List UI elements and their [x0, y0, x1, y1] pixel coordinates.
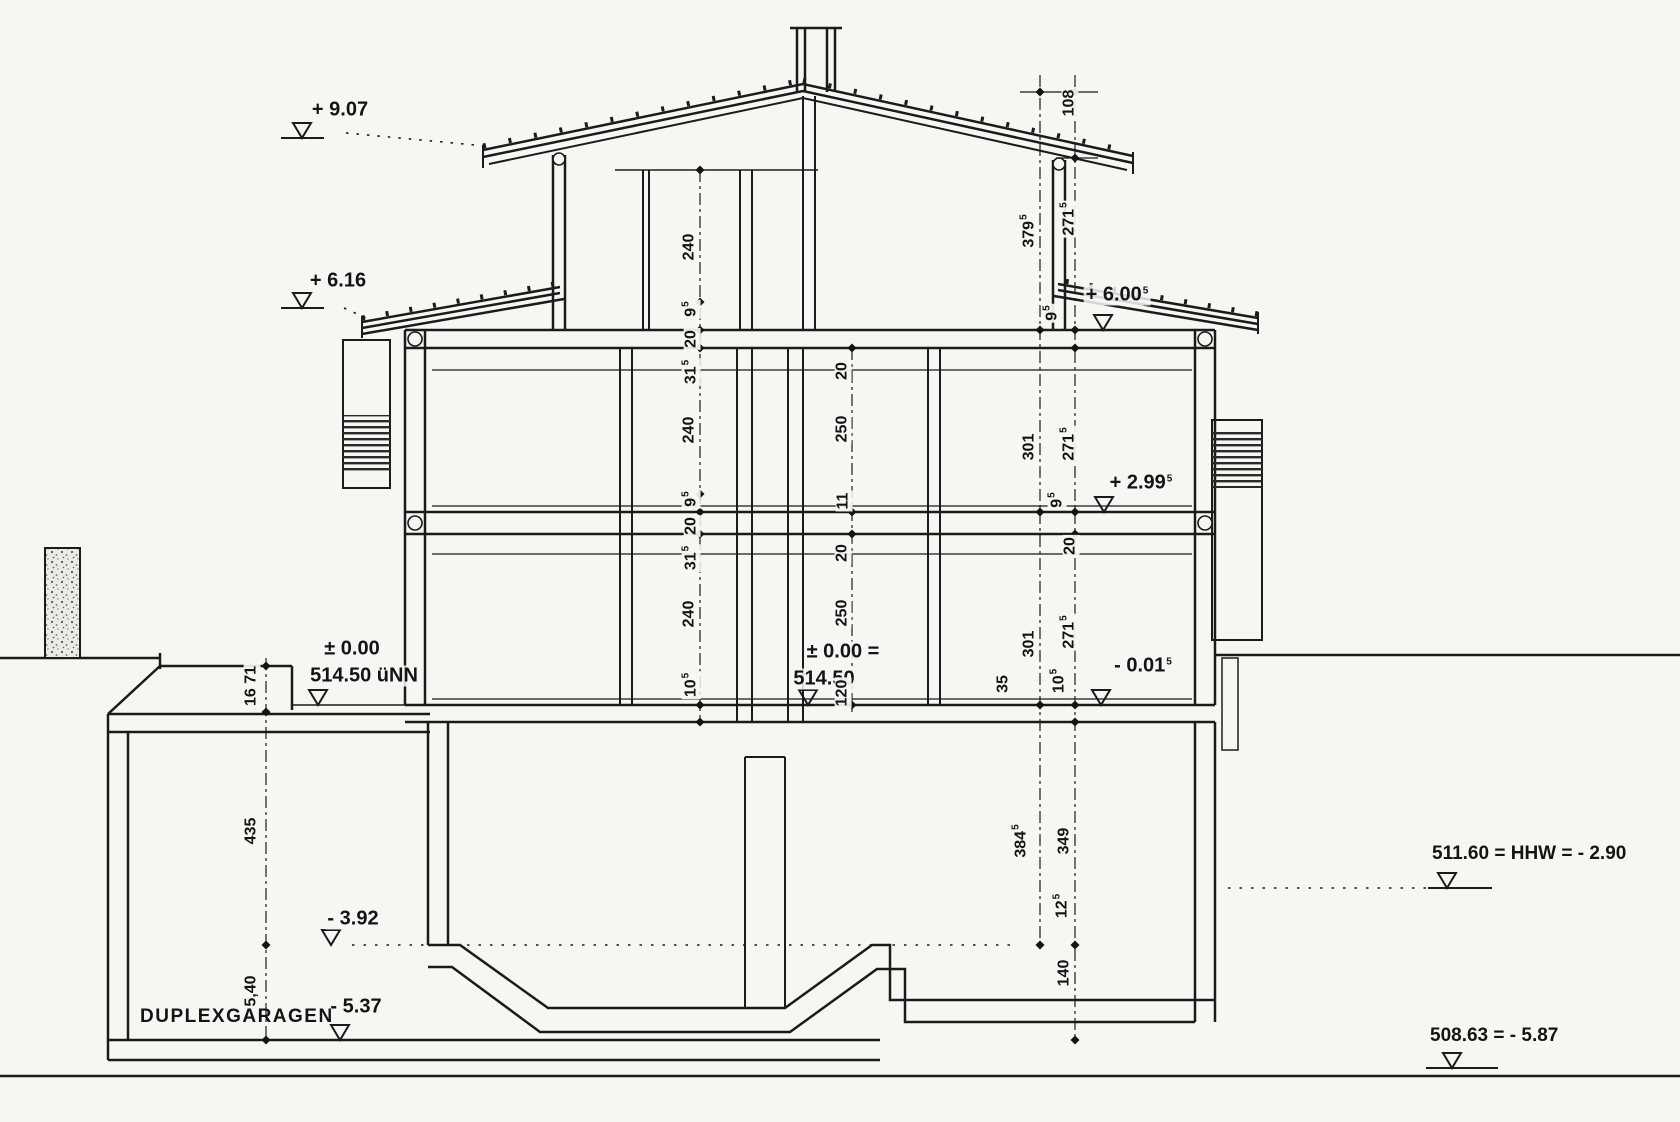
masonry-post: [45, 548, 80, 658]
dimension-lines: [266, 75, 1098, 1040]
section-drawing: + 9.07+ 6.16± 0.00514.50 üNN± 0.00 =514.…: [0, 0, 1680, 1122]
walls: [405, 96, 1215, 722]
dimension-ticks: [262, 88, 1080, 1045]
section-linework: [0, 0, 1680, 1122]
leader-lines: [344, 133, 1440, 945]
joint-ring-symbols: [408, 153, 1212, 530]
main-roof: [483, 80, 1133, 174]
floor-slabs: [405, 330, 1215, 722]
bottom-elevation-note: 508.63 = - 5.87: [1430, 1025, 1558, 1047]
chimney: [790, 28, 842, 92]
level-markers: [281, 123, 1498, 1068]
basement-garage: [108, 666, 1215, 1060]
garage-label: DUPLEXGARAGEN: [140, 1006, 334, 1028]
hhw-elevation-note: 511.60 = HHW = - 2.90: [1432, 843, 1626, 865]
